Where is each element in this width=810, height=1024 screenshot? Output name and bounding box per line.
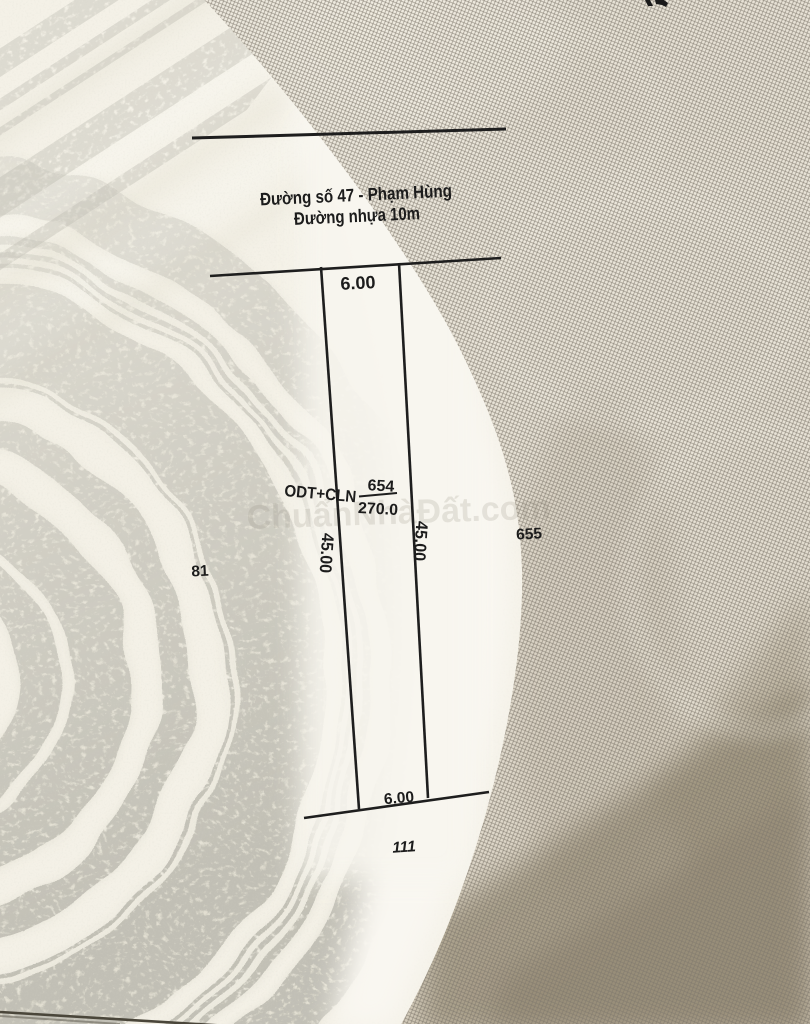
svg-text:6.00: 6.00: [383, 789, 415, 809]
svg-text:270.0: 270.0: [358, 500, 399, 519]
svg-text:655: 655: [516, 525, 543, 543]
svg-text:111: 111: [392, 838, 417, 857]
svg-text:81: 81: [191, 563, 209, 581]
svg-text:45.00: 45.00: [410, 520, 432, 561]
svg-text:6.00: 6.00: [340, 272, 376, 294]
svg-text:45.00: 45.00: [316, 532, 338, 573]
